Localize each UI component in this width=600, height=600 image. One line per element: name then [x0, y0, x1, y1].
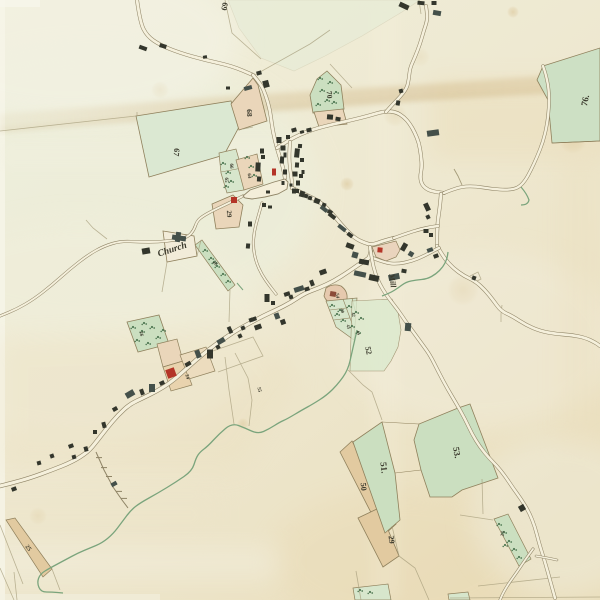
svg-text:53.: 53.	[451, 446, 463, 459]
svg-text:51.: 51.	[378, 462, 389, 474]
svg-text:29: 29	[225, 210, 233, 218]
svg-text:65: 65	[223, 178, 228, 184]
svg-text:68: 68	[245, 109, 254, 117]
svg-text:70: 70	[325, 91, 335, 100]
svg-text:69: 69	[219, 2, 229, 11]
svg-text:66: 66	[228, 164, 233, 170]
svg-text:64: 64	[246, 173, 251, 179]
svg-text:29: 29	[386, 535, 396, 544]
svg-text:67: 67	[172, 148, 182, 157]
svg-text:50: 50	[359, 482, 369, 491]
